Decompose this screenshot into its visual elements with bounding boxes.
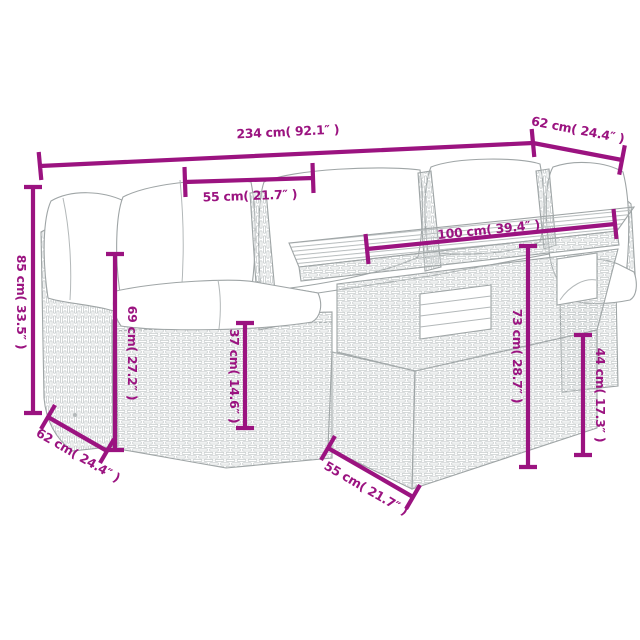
dim-label-arm-height: 69 cm( 27.2″ ) [125, 306, 140, 401]
dim-label-seat-height: 37 cm( 14.6″ ) [227, 329, 242, 424]
table-right-opening [557, 253, 597, 305]
dimension-diagram-canvas: 234 cm( 92.1″ ) 62 cm( 24.4″ ) 55 cm( 21… [0, 0, 640, 640]
dim-label-seat-depth-top: 62 cm( 24.4″ ) [530, 113, 626, 146]
dim-label-seat-width: 55 cm( 21.7″ ) [202, 187, 297, 205]
dimension-diagram: 234 cm( 92.1″ ) 62 cm( 24.4″ ) 55 cm( 21… [0, 0, 640, 640]
seat-cushion-left [113, 280, 320, 329]
sofa-base-left [112, 312, 332, 468]
dim-label-table-base-height: 44 cm( 17.3″ ) [593, 348, 608, 443]
foot-dot-left [73, 413, 77, 417]
dim-label-back-height: 85 cm( 33.5″ ) [14, 255, 29, 350]
dim-label-table-height: 73 cm( 28.7″ ) [510, 309, 525, 404]
dim-label-total-width: 234 cm( 92.1″ ) [236, 122, 340, 142]
